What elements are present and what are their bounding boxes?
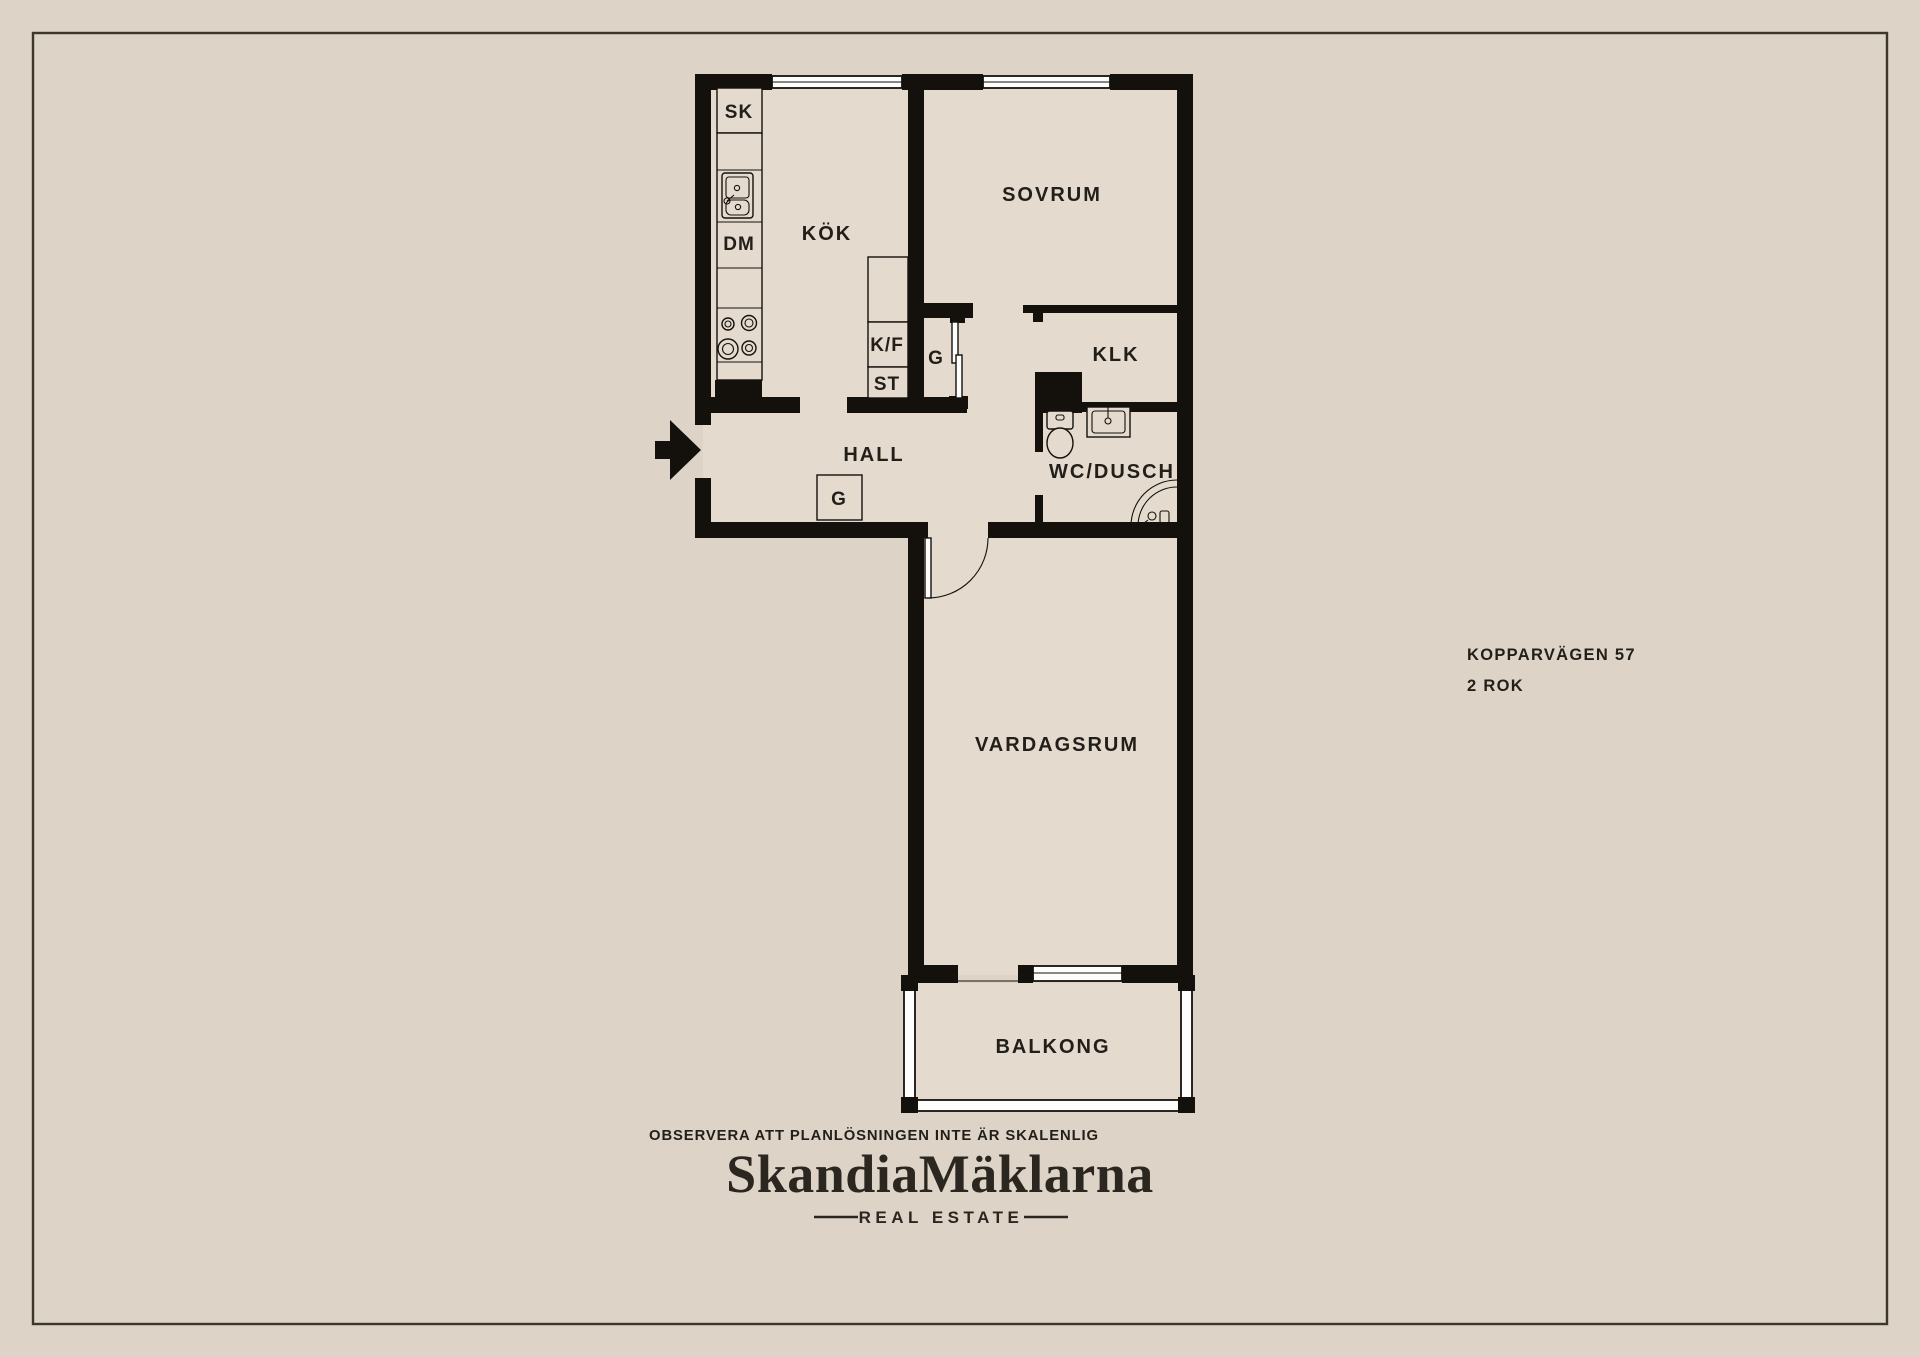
room-label-klk: KLK <box>1092 344 1139 366</box>
wall-right <box>1177 88 1193 983</box>
label-g-closet: G <box>928 348 944 369</box>
tall-cabinet <box>868 257 908 322</box>
room-label-sovrum: SOVRUM <box>1002 184 1102 206</box>
floor-plan-canvas: SK DM KÖK SOVRUM K/F ST G KLK HALL G WC/… <box>0 0 1920 1357</box>
brand-logo-text: SkandiaMäklarna <box>726 1144 1154 1204</box>
label-dm: DM <box>723 234 755 255</box>
address-line1: KOPPARVÄGEN 57 <box>1467 646 1636 664</box>
wall-klk-north <box>1023 305 1177 313</box>
room-label-balkong: BALKONG <box>995 1036 1110 1058</box>
balcony-post-bottom-left <box>901 1097 918 1113</box>
balcony-post-top-left <box>901 975 918 991</box>
room-label-wc: WC/DUSCH <box>1049 461 1175 483</box>
wall-klk-doorstop <box>1033 313 1043 322</box>
address-block: KOPPARVÄGEN 57 2 ROK <box>1467 646 1636 695</box>
basin-tap-right <box>1112 402 1116 407</box>
balcony-rail-right <box>1181 983 1192 1100</box>
wall-kitchen-south <box>695 397 800 413</box>
label-g-hall: G <box>831 489 847 510</box>
wall-left-upper <box>695 88 711 425</box>
livingroom-door-leaf <box>925 538 931 598</box>
shaft-block <box>1035 372 1082 413</box>
wall-kitchen-counter-stub <box>715 380 762 397</box>
room-label-vardagsrum: VARDAGSRUM <box>975 734 1139 756</box>
disclaimer-text: OBSERVERA ATT PLANLÖSNINGEN INTE ÄR SKAL… <box>649 1127 1099 1144</box>
balcony-rail-left <box>904 983 915 1100</box>
entrance-arrow-icon <box>655 420 701 480</box>
basin-tap-left <box>1096 402 1100 407</box>
balcony-post-top-right <box>1178 975 1195 991</box>
toilet-icon <box>1047 411 1073 458</box>
tagline-text: REAL ESTATE <box>859 1208 1024 1227</box>
address-line2: 2 ROK <box>1467 677 1524 695</box>
label-kf: K/F <box>870 335 904 356</box>
wall-wc-west-lower <box>1035 495 1043 522</box>
wall-hall-south-left <box>695 522 928 538</box>
wall-top-mid <box>902 74 983 90</box>
wall-hall-south-right <box>988 522 1177 538</box>
kitchen-sink-icon <box>722 173 753 218</box>
room-label-kok: KÖK <box>802 222 852 245</box>
room-label-hall: HALL <box>843 444 904 466</box>
balcony-post-bottom-right <box>1178 1097 1195 1113</box>
wall-top-right <box>1110 74 1193 90</box>
footer: OBSERVERA ATT PLANLÖSNINGEN INTE ÄR SKAL… <box>649 1127 1154 1227</box>
wall-livingroom-west <box>908 522 924 965</box>
wall-livingroom-south-pier <box>1018 965 1033 983</box>
washbasin-icon <box>1087 402 1130 437</box>
wall-wc-west-upper <box>1035 413 1043 452</box>
floor-areas <box>703 82 1192 1100</box>
closet-door-leaf-lower <box>956 355 962 398</box>
toilet-bowl <box>1047 428 1073 458</box>
balcony-rail-bottom <box>904 1100 1192 1111</box>
wall-kitchen-bedroom-divider <box>908 88 924 413</box>
label-sk: SK <box>725 102 753 123</box>
label-st: ST <box>874 374 900 395</box>
